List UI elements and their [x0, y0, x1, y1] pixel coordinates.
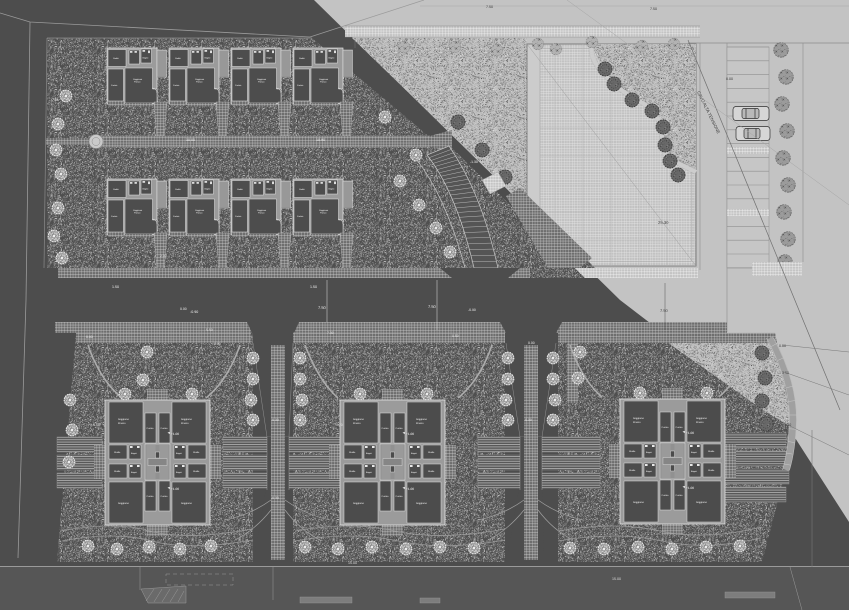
svg-text:0.00: 0.00 [214, 342, 221, 346]
svg-text:7.30: 7.30 [327, 331, 334, 335]
svg-text:0.00: 0.00 [528, 341, 535, 345]
svg-text:-0.90: -0.90 [190, 310, 198, 314]
svg-text:7.50: 7.50 [650, 7, 657, 11]
svg-text:-1.30: -1.30 [783, 423, 791, 427]
svg-text:0.00: 0.00 [726, 77, 733, 81]
svg-text:15.00: 15.00 [612, 577, 621, 581]
svg-text:0.00: 0.00 [180, 307, 187, 311]
svg-text:0.00: 0.00 [86, 335, 93, 339]
svg-text:1.50: 1.50 [310, 285, 317, 289]
svg-text:7.50: 7.50 [660, 308, 669, 313]
svg-text:-0.30: -0.30 [271, 496, 279, 500]
svg-text:1.50: 1.50 [112, 285, 119, 289]
svg-text:-0.90: -0.90 [468, 308, 476, 312]
svg-text:2.00: 2.00 [160, 254, 167, 258]
svg-text:15.00: 15.00 [348, 561, 357, 565]
svg-text:-0.30: -0.30 [524, 418, 532, 422]
svg-text:7.50: 7.50 [486, 5, 493, 9]
svg-text:10.00: 10.00 [186, 138, 195, 142]
svg-text:10.90: 10.90 [316, 138, 325, 142]
svg-text:1.50: 1.50 [452, 334, 459, 338]
svg-text:5.50: 5.50 [206, 328, 213, 332]
svg-text:-0.30: -0.30 [271, 418, 279, 422]
svg-text:0.00: 0.00 [779, 344, 786, 348]
svg-text:7.50: 7.50 [318, 305, 327, 310]
svg-text:-0.50: -0.50 [92, 423, 100, 427]
svg-text:7.06: 7.06 [52, 98, 59, 102]
svg-text:3.50: 3.50 [782, 371, 789, 375]
svg-text:25.30: 25.30 [658, 220, 669, 225]
svg-text:1.70: 1.70 [336, 423, 343, 427]
svg-text:7.50: 7.50 [428, 304, 437, 309]
svg-text:-1.30: -1.30 [470, 160, 478, 164]
